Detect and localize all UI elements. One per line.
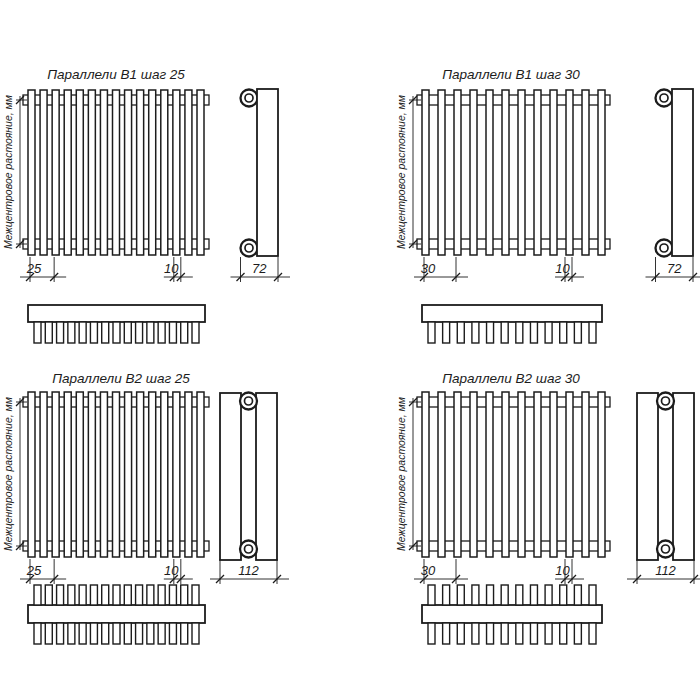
tube-width-dimension: 10 [164, 563, 179, 578]
top-view-tube [34, 623, 41, 644]
side-profile-front-row [637, 393, 658, 560]
center-distance-label: Межцентровое растояние, мм [2, 397, 14, 551]
top-view-tube [443, 623, 450, 644]
top-view [422, 585, 602, 644]
top-view-tube [79, 322, 86, 343]
top-view-tube [472, 585, 479, 605]
tube-width-dimension: 10 [164, 261, 179, 276]
pipe-connection-inner [660, 94, 668, 102]
top-view-tube [545, 585, 552, 605]
radiator-tube [40, 90, 47, 255]
side-profile-back-row [673, 393, 694, 560]
center-distance-label: Межцентровое растояние, мм [2, 95, 14, 249]
depth-dimension: 112 [655, 563, 676, 578]
top-collector [417, 95, 610, 105]
radiator-tube [125, 90, 132, 255]
radiator-tube [76, 90, 83, 255]
front-view [417, 392, 610, 557]
radiator-tube [40, 392, 47, 557]
top-view-tube [560, 623, 567, 644]
panel-title: Параллели В2 шаг 25 [52, 371, 190, 386]
top-view-tube [428, 322, 435, 343]
radiator-tube [76, 392, 83, 557]
radiator-tube [161, 90, 168, 255]
depth-dimension: 72 [667, 261, 682, 276]
top-view-tube [574, 585, 581, 605]
radiator-tube [173, 90, 180, 255]
top-view-tube [124, 585, 131, 605]
center-distance-label: Межцентровое растояние, мм [395, 95, 407, 249]
radiator-tube [197, 90, 204, 255]
top-view-tube [102, 585, 109, 605]
panel-title: Параллели В1 шаг 30 [442, 67, 580, 82]
radiator-tube [64, 90, 71, 255]
top-view-collector [28, 305, 205, 322]
radiator-tube [173, 392, 180, 557]
top-view-tube [530, 585, 537, 605]
top-view-tube [34, 322, 41, 343]
radiator-tube [582, 90, 589, 255]
top-view-tube [457, 623, 464, 644]
top-view-tube [516, 623, 523, 644]
top-view-tube [34, 585, 41, 605]
top-view-tube [443, 585, 450, 605]
top-view-tube [79, 623, 86, 644]
radiator-tube [100, 392, 107, 557]
top-view-tube [102, 322, 109, 343]
top-view-tube [501, 623, 508, 644]
top-view-tube [45, 623, 52, 644]
pipe-connection-inner [245, 545, 253, 553]
front-view [23, 90, 209, 255]
pipe-connection-inner [245, 397, 253, 405]
radiator-drawing-sheet: Параллели В1 шаг 25Межцентровое растояни… [0, 0, 700, 700]
top-view [28, 585, 205, 644]
top-view-tube [530, 322, 537, 343]
radiator-tube [550, 90, 557, 255]
top-view-tube [136, 585, 143, 605]
top-view-tube [501, 585, 508, 605]
top-view-tube [589, 585, 596, 605]
top-view-tube [124, 623, 131, 644]
radiator-tube [88, 392, 95, 557]
radiator-tube [64, 392, 71, 557]
top-view-tube [147, 585, 154, 605]
radiator-tube [422, 392, 429, 557]
pipe-connection-inner [662, 397, 670, 405]
radiator-tube [185, 90, 192, 255]
top-view-tube [589, 322, 596, 343]
pitch-dimension: 25 [26, 563, 42, 578]
side-view [637, 393, 694, 561]
top-view-tube [428, 623, 435, 644]
top-view-collector [28, 605, 205, 623]
top-view-tube [560, 322, 567, 343]
side-profile-back-row [256, 393, 277, 560]
top-view-tube [113, 585, 120, 605]
radiator-tube [598, 392, 605, 557]
top-view-tube [158, 585, 165, 605]
front-dimensions: 2510 [20, 257, 193, 282]
top-view-tube [147, 322, 154, 343]
top-view-tube [57, 322, 64, 343]
top-view-tube [589, 623, 596, 644]
center-distance-label: Межцентровое растояние, мм [395, 397, 407, 551]
side-view [220, 393, 277, 561]
radiator-tube [52, 90, 59, 255]
radiator-tube [454, 392, 461, 557]
top-view-tube [68, 585, 75, 605]
panel-title: Параллели В1 шаг 25 [47, 67, 185, 82]
panel-b1-step-25: Параллели В1 шаг 25Межцентровое растояни… [2, 67, 290, 343]
radiator-tube [113, 90, 120, 255]
top-view-tube [192, 585, 199, 605]
pitch-dimension: 25 [26, 261, 42, 276]
top-view-tube [90, 623, 97, 644]
top-collector [417, 397, 610, 407]
radiator-tube [197, 392, 204, 557]
pipe-connection-inner [245, 244, 253, 252]
radiator-tube [534, 392, 541, 557]
side-profile [257, 89, 278, 256]
top-view-tube [574, 322, 581, 343]
side-view [656, 89, 694, 257]
side-profile [672, 89, 693, 256]
top-view [28, 305, 205, 343]
top-view-tube [530, 623, 537, 644]
top-view-tube [169, 585, 176, 605]
radiator-tube [550, 392, 557, 557]
top-view-tube [45, 585, 52, 605]
pitch-dimension: 30 [421, 563, 436, 578]
radiator-tube [113, 392, 120, 557]
tube-width-dimension: 10 [555, 261, 570, 276]
top-view-tube [102, 623, 109, 644]
radiator-tube [185, 392, 192, 557]
top-view-tube [158, 623, 165, 644]
top-view-tube [68, 623, 75, 644]
radiator-tube [52, 392, 59, 557]
radiator-tube [422, 90, 429, 255]
top-view-tube [45, 322, 52, 343]
depth-dimension: 112 [238, 563, 259, 578]
radiator-tube [518, 392, 525, 557]
radiator-tube [470, 90, 477, 255]
radiator-tube [149, 90, 156, 255]
radiator-tube [486, 392, 493, 557]
top-view-tube [428, 585, 435, 605]
pipe-connection-inner [662, 545, 670, 553]
center-distance-dimension: Межцентровое растояние, мм [2, 95, 27, 249]
top-view-tube [124, 322, 131, 343]
radiator-tube [582, 392, 589, 557]
top-view-tube [57, 585, 64, 605]
center-distance-dimension: Межцентровое растояние, мм [395, 397, 421, 551]
top-view-tube [79, 585, 86, 605]
center-distance-dimension: Межцентровое растояние, мм [2, 397, 27, 551]
radiator-tube [438, 90, 445, 255]
front-view [23, 392, 209, 557]
top-view-tube [487, 322, 494, 343]
pipe-connection-inner [245, 94, 253, 102]
radiator-tube [28, 392, 35, 557]
top-view-tube [457, 585, 464, 605]
top-view-tube [181, 623, 188, 644]
front-dimensions: 2510 [20, 559, 193, 584]
panel-b2-step-25: Параллели В2 шаг 25Межцентровое растояни… [2, 371, 289, 644]
radiator-drawings-svg: Параллели В1 шаг 25Межцентровое растояни… [0, 0, 700, 700]
top-view-tube [113, 322, 120, 343]
top-view-tube [136, 322, 143, 343]
radiator-tube [88, 90, 95, 255]
top-view-tube [472, 322, 479, 343]
top-view-tube [158, 322, 165, 343]
top-view-tube [192, 623, 199, 644]
radiator-tube [137, 392, 144, 557]
pipe-connection-inner [660, 244, 668, 252]
radiator-tube [125, 392, 132, 557]
bottom-collector [417, 541, 610, 551]
radiator-tube [28, 90, 35, 255]
radiator-tube [161, 392, 168, 557]
radiator-tube [534, 90, 541, 255]
radiator-tube [566, 392, 573, 557]
radiator-tube [502, 392, 509, 557]
front-dimensions: 3010 [414, 559, 584, 584]
top-view-tube [516, 322, 523, 343]
top-view-tube [516, 585, 523, 605]
top-view-tube [487, 585, 494, 605]
top-view-tube [545, 623, 552, 644]
radiator-tube [598, 90, 605, 255]
top-view-tube [147, 623, 154, 644]
top-view-tube [136, 623, 143, 644]
panel-b1-step-30: Параллели В1 шаг 30Межцентровое растояни… [395, 67, 700, 343]
front-view [417, 90, 610, 255]
top-view-tube [487, 623, 494, 644]
side-profile-front-row [220, 393, 241, 560]
front-dimensions: 3010 [414, 257, 584, 282]
top-view-tube [113, 623, 120, 644]
top-view-tube [457, 322, 464, 343]
side-view [241, 89, 279, 257]
top-view-tube [90, 585, 97, 605]
top-view [422, 305, 602, 343]
radiator-tube [502, 90, 509, 255]
top-view-tube [169, 322, 176, 343]
top-view-tube [560, 585, 567, 605]
radiator-tube [137, 90, 144, 255]
top-view-tube [57, 623, 64, 644]
panel-b2-step-30: Параллели В2 шаг 30Межцентровое растояни… [395, 371, 700, 644]
depth-dimension: 72 [252, 261, 267, 276]
top-view-tube [90, 322, 97, 343]
top-view-tube [181, 322, 188, 343]
top-view-tube [443, 322, 450, 343]
radiator-tube [566, 90, 573, 255]
top-view-tube [545, 322, 552, 343]
radiator-tube [100, 90, 107, 255]
radiator-tube [454, 90, 461, 255]
top-view-tube [192, 322, 199, 343]
radiator-tube [438, 392, 445, 557]
radiator-tube [518, 90, 525, 255]
top-view-collector [422, 605, 602, 623]
top-view-tube [169, 623, 176, 644]
radiator-tube [486, 90, 493, 255]
radiator-tube [470, 392, 477, 557]
top-view-tube [68, 322, 75, 343]
pitch-dimension: 30 [421, 261, 436, 276]
top-view-tube [574, 623, 581, 644]
tube-width-dimension: 10 [555, 563, 570, 578]
top-view-tube [472, 623, 479, 644]
top-view-tube [501, 322, 508, 343]
bottom-collector [417, 239, 610, 249]
top-view-tube [181, 585, 188, 605]
center-distance-dimension: Межцентровое растояние, мм [395, 95, 421, 249]
radiator-tube [149, 392, 156, 557]
panel-title: Параллели В2 шаг 30 [442, 371, 580, 386]
top-view-collector [422, 305, 602, 322]
